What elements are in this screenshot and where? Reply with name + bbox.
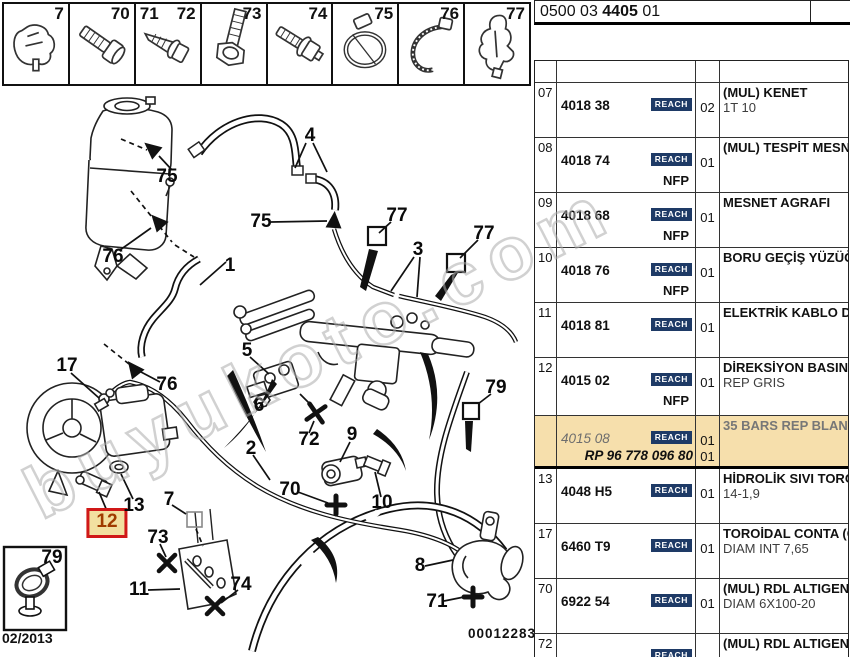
callout-6: 6	[254, 395, 265, 417]
parts-row-72: 72REACH(MUL) RDL ALTIGEN B	[535, 634, 848, 657]
square-marker-7	[187, 512, 202, 527]
parts-row-17: 176460 T9REACH01TOROİDAL CONTA (ODIAM IN…	[535, 524, 848, 579]
parts-row-07: 074018 38REACH02(MUL) KENET1T 10	[535, 83, 848, 138]
fastener-label: 72	[177, 4, 196, 24]
nfp-label: NFP	[663, 393, 689, 408]
title-divider	[810, 1, 811, 22]
desc-line-2: REP GRIS	[723, 375, 848, 390]
part-number: 4018 38	[561, 98, 610, 113]
callout-4: 4	[305, 125, 316, 147]
header-cell	[535, 61, 557, 82]
qty-cell: 02	[696, 83, 720, 137]
part-cell: 6922 54REACH	[557, 579, 696, 633]
fastener-cell-77: 77	[465, 4, 529, 84]
callout-79: 79	[41, 547, 62, 569]
fastener-cell-73: 73	[202, 4, 268, 84]
fastener-cell-75: 75	[333, 4, 399, 84]
callout-74: 74	[230, 574, 251, 596]
qty-value: 01	[696, 375, 719, 390]
callout-79: 79	[485, 377, 506, 399]
ref-cell: 70	[535, 579, 557, 633]
callout-17: 17	[56, 355, 77, 377]
ref-cell: 10	[535, 248, 557, 302]
callout-70: 70	[279, 479, 300, 501]
callout-77: 77	[386, 205, 407, 227]
parts-row-highlight: 4015 08REACHRP 96 778 096 80010135 BARS …	[535, 416, 848, 469]
qty-cell: 01	[696, 138, 720, 192]
desc-cell: BORU GEÇİŞ YÜZÜĞÜ	[720, 248, 848, 302]
fastener-cell-74: 74	[268, 4, 334, 84]
parts-row-70: 706922 54REACH01(MUL) RDL ALTIGEN BDIAM …	[535, 579, 848, 634]
qty-value-2: 01	[696, 449, 719, 464]
reach-badge[interactable]: REACH	[651, 208, 692, 221]
callout-5: 5	[242, 340, 253, 362]
part-cell: 4018 68REACHNFP	[557, 193, 696, 247]
desc-line-2: DIAM INT 7,65	[723, 541, 848, 556]
ref-cell: 08	[535, 138, 557, 192]
nfp-label: NFP	[663, 283, 689, 298]
part-number: 4015 02	[561, 373, 610, 388]
reach-badge[interactable]: REACH	[651, 594, 692, 607]
callout-8: 8	[415, 555, 426, 577]
fastener-label: 7	[54, 4, 63, 24]
desc-line-1: (MUL) TESPİT MESNE	[723, 140, 848, 155]
diagram-line-art	[0, 0, 534, 657]
fastener-label: 71	[140, 4, 159, 24]
part-number: 4018 81	[561, 318, 610, 333]
desc-cell: (MUL) TESPİT MESNE	[720, 138, 848, 192]
ref-cell: 07	[535, 83, 557, 137]
qty-value: 01	[696, 596, 719, 611]
desc-line-2: 14-1,9	[723, 486, 848, 501]
part-number: 4015 08	[561, 431, 610, 446]
callout-77: 77	[473, 223, 494, 245]
qty-value: 02	[696, 100, 719, 115]
desc-line-1: ELEKTRİK KABLO DEM	[723, 305, 848, 320]
ref-cell: 17	[535, 524, 557, 578]
reach-badge[interactable]: REACH	[651, 153, 692, 166]
desc-line-1: BORU GEÇİŞ YÜZÜĞÜ	[723, 250, 848, 265]
callout-76: 76	[156, 374, 177, 396]
ref-cell: 09	[535, 193, 557, 247]
drawing-number: 00012283	[468, 626, 536, 641]
qty-cell: 01	[696, 303, 720, 357]
callout-9: 9	[347, 424, 358, 446]
desc-cell: TOROİDAL CONTA (ODIAM INT 7,65	[720, 524, 848, 578]
header-cell	[720, 61, 848, 82]
callout-75: 75	[250, 211, 271, 233]
qty-cell: 01	[696, 248, 720, 302]
callout-2: 2	[246, 438, 257, 460]
callout-13: 13	[123, 495, 144, 517]
part-number: 4018 68	[561, 208, 610, 223]
fastener-label: 70	[111, 4, 130, 24]
callout-11: 11	[129, 579, 149, 601]
desc-cell: (MUL) RDL ALTIGEN B	[720, 634, 848, 657]
parts-table-header-row	[535, 61, 848, 83]
fastener-cell-7: 7	[4, 4, 70, 84]
fastener-strip: 7 70 71 72 73	[2, 2, 531, 86]
fastener-cell-71-72: 71 72	[136, 4, 202, 84]
nfp-label: NFP	[663, 173, 689, 188]
qty-value: 01	[696, 320, 719, 335]
ref-cell: 13	[535, 469, 557, 523]
reach-badge[interactable]: REACH	[651, 484, 692, 497]
header-cell	[696, 61, 720, 82]
exploded-diagram: 12 02/2013 00012283 75761754773771757667…	[0, 0, 534, 657]
reach-badge[interactable]: REACH	[651, 539, 692, 552]
parts-row-12: 124015 02REACHNFP01DİREKSİYON BASINÇREP …	[535, 358, 848, 416]
reservoir-drawing	[86, 97, 174, 280]
qty-cell: 01	[696, 193, 720, 247]
ref-cell: 11	[535, 303, 557, 357]
desc-line-2: DIAM 6X100-20	[723, 596, 848, 611]
callout-76: 76	[102, 246, 123, 268]
desc-line-1: MESNET AGRAFI	[723, 195, 848, 210]
parts-table: 074018 38REACH02(MUL) KENET1T 10084018 7…	[534, 60, 849, 657]
callout-72: 72	[298, 429, 319, 451]
desc-cell: HİDROLİK SIVI TOROİ14-1,9	[720, 469, 848, 523]
reach-badge[interactable]: REACH	[651, 318, 692, 331]
desc-line-1: (MUL) KENET	[723, 85, 848, 100]
qty-cell	[696, 634, 720, 657]
qty-value: 01	[696, 486, 719, 501]
parts-row-11: 114018 81REACH01ELEKTRİK KABLO DEM	[535, 303, 848, 358]
rp-reference-number: RP 96 778 096 80	[585, 448, 693, 463]
part-number: 4018 74	[561, 153, 610, 168]
reach-badge[interactable]: REACH	[651, 373, 692, 386]
desc-cell: ELEKTRİK KABLO DEM	[720, 303, 848, 357]
part-cell: 4048 H5REACH	[557, 469, 696, 523]
qty-cell: 01	[696, 358, 720, 415]
parts-row-10: 104018 76REACHNFP01BORU GEÇİŞ YÜZÜĞÜ	[535, 248, 848, 303]
ref-cell: 72	[535, 634, 557, 657]
qty-value: 01	[696, 210, 719, 225]
parts-table-panel: 0500 03 4405 01 074018 38REACH02(MUL) KE…	[534, 0, 850, 657]
desc-cell: (MUL) KENET1T 10	[720, 83, 848, 137]
desc-cell: (MUL) RDL ALTIGEN BDIAM 6X100-20	[720, 579, 848, 633]
desc-line-1: TOROİDAL CONTA (O	[723, 526, 848, 541]
desc-line-1: (MUL) RDL ALTIGEN B	[723, 581, 848, 596]
reach-badge[interactable]: REACH	[651, 649, 692, 657]
part-cell: 4018 81REACH	[557, 303, 696, 357]
part-cell: 4018 74REACHNFP	[557, 138, 696, 192]
qty-cell: 01	[696, 579, 720, 633]
part-number: 6922 54	[561, 594, 610, 609]
fastener-label: 73	[243, 4, 262, 24]
parts-row-09: 094018 68REACHNFP01MESNET AGRAFI	[535, 193, 848, 248]
catalog-title-bar: 0500 03 4405 01	[534, 0, 850, 25]
parts-row-08: 084018 74REACHNFP01(MUL) TESPİT MESNE	[535, 138, 848, 193]
desc-cell: MESNET AGRAFI	[720, 193, 848, 247]
part-number: 6460 T9	[561, 539, 611, 554]
qty-cell: 01	[696, 524, 720, 578]
ref-cell	[535, 416, 557, 466]
callout-1: 1	[225, 255, 236, 277]
desc-line-1: HİDROLİK SIVI TOROİ	[723, 471, 848, 486]
qty-cell: 0101	[696, 416, 720, 466]
part-cell: 6460 T9REACH	[557, 524, 696, 578]
nfp-label: NFP	[663, 228, 689, 243]
callout-3: 3	[413, 239, 424, 261]
callout-10: 10	[371, 492, 392, 514]
qty-value: 01	[696, 155, 719, 170]
fastener-label: 74	[308, 4, 327, 24]
fastener-label: 77	[506, 4, 525, 24]
part-cell: REACH	[557, 634, 696, 657]
desc-line-1: DİREKSİYON BASINÇ	[723, 360, 848, 375]
qty-value: 01	[696, 433, 719, 448]
parts-row-13: 134048 H5REACH01HİDROLİK SIVI TOROİ14-1,…	[535, 469, 848, 524]
callout-12-highlighted: 12	[86, 508, 127, 538]
callout-73: 73	[147, 527, 168, 549]
desc-cell: DİREKSİYON BASINÇREP GRIS	[720, 358, 848, 415]
parts-catalog-page: 7 70 71 72 73	[0, 0, 850, 657]
part-cell: 4018 38REACH	[557, 83, 696, 137]
callout-71: 71	[426, 591, 447, 613]
qty-cell: 01	[696, 469, 720, 523]
catalog-code: 0500 03 4405 01	[535, 3, 660, 20]
ref-cell: 12	[535, 358, 557, 415]
qty-value: 01	[696, 541, 719, 556]
part-cell: 4015 08REACHRP 96 778 096 80	[557, 416, 696, 466]
fastener-cell-76: 76	[399, 4, 465, 84]
reach-badge[interactable]: REACH	[651, 263, 692, 276]
part-number: 4018 76	[561, 263, 610, 278]
reach-badge[interactable]: REACH	[651, 431, 692, 444]
header-cell	[557, 61, 696, 82]
part-cell: 4018 76REACHNFP	[557, 248, 696, 302]
part-number: 4048 H5	[561, 484, 612, 499]
reach-badge[interactable]: REACH	[651, 98, 692, 111]
callout-7: 7	[164, 489, 175, 511]
desc-line-1: (MUL) RDL ALTIGEN B	[723, 636, 848, 651]
diagram-date-label: 02/2013	[2, 630, 53, 646]
qty-value: 01	[696, 265, 719, 280]
fastener-cell-70: 70	[70, 4, 136, 84]
fastener-label: 76	[440, 4, 459, 24]
fastener-label: 75	[374, 4, 393, 24]
desc-cell: 35 BARS REP BLANC	[720, 416, 848, 466]
part-cell: 4015 02REACHNFP	[557, 358, 696, 415]
callout-75: 75	[156, 166, 177, 188]
desc-line-1: 35 BARS REP BLANC	[723, 418, 848, 433]
desc-line-2: 1T 10	[723, 100, 848, 115]
